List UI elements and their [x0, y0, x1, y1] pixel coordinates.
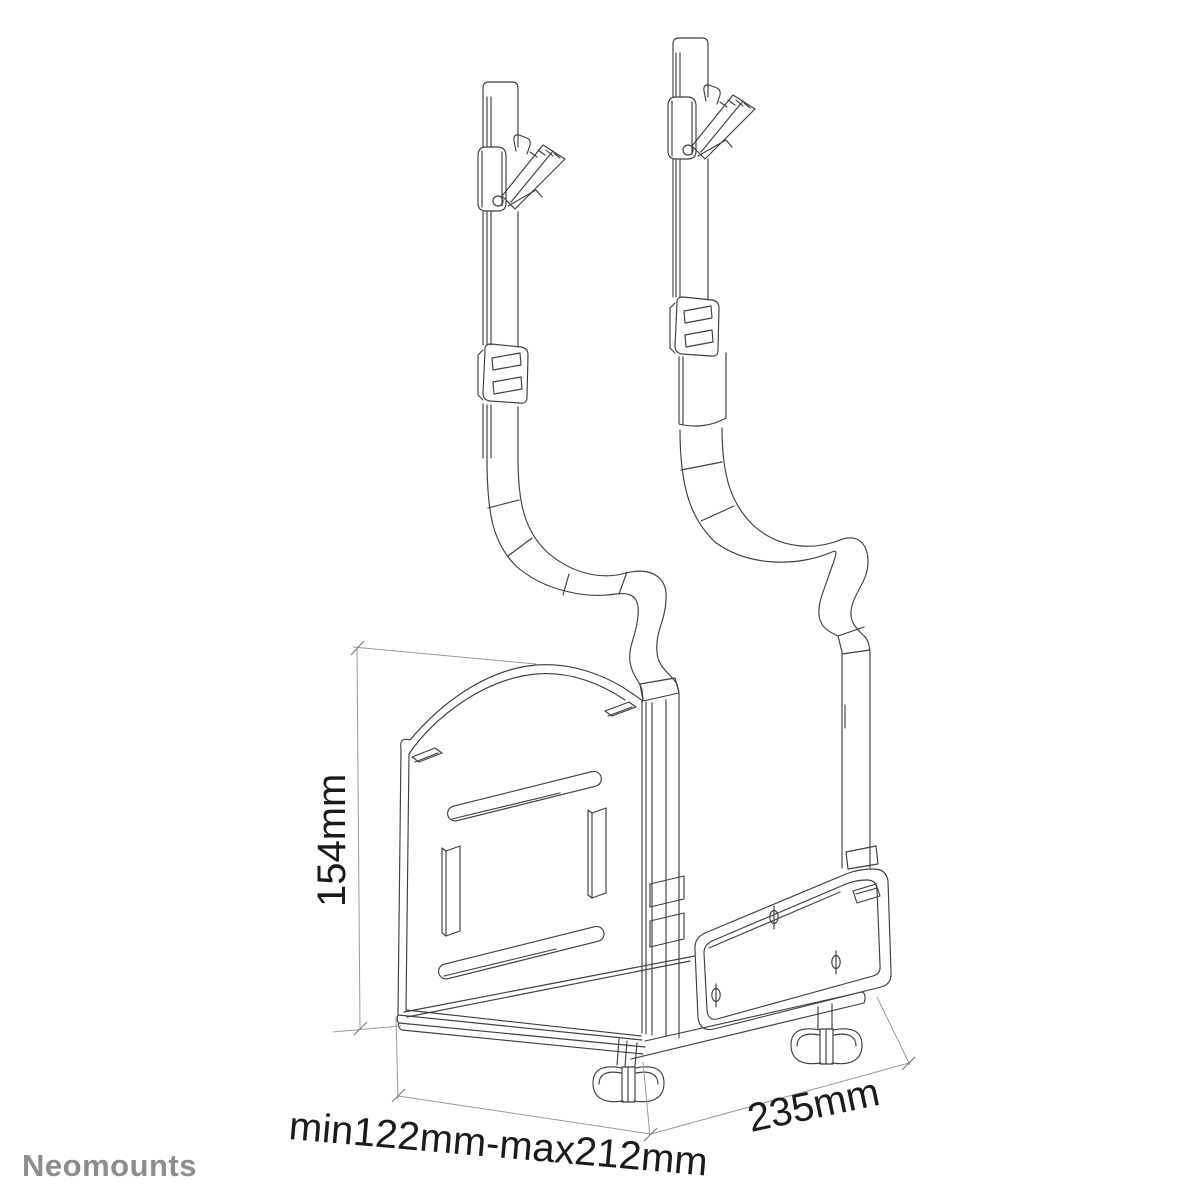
left-strap-upper-rails	[483, 97, 518, 147]
right-strap	[668, 38, 878, 869]
base-rail	[397, 956, 865, 1066]
side-panel-outer	[695, 869, 891, 1030]
right-thumbscrew	[791, 1029, 862, 1064]
right-strap-mid-rails	[673, 159, 708, 300]
right-thumbscrew-post	[820, 1029, 833, 1064]
plate-small-slot-right	[588, 808, 606, 898]
right-hook-back-tab	[704, 85, 720, 104]
technical-drawing-page: 154mm min122mm-max212mm 235mm Neomounts	[0, 0, 1200, 1200]
left-thumbscrew-post	[622, 1067, 635, 1102]
right-strap-wide-band	[679, 353, 726, 426]
dimension-labels: 154mm min122mm-max212mm 235mm	[287, 774, 883, 1185]
depth-extension-left	[396, 1016, 398, 1100]
left-strap-top-cap	[483, 82, 518, 97]
left-strap	[478, 82, 679, 701]
right-strap-upper-rails	[673, 53, 708, 97]
right-strap-buckle-slots	[684, 306, 713, 347]
left-strap-lower-rails	[483, 404, 518, 458]
plate-arch-inner	[409, 674, 625, 754]
side-panel-inner-face	[704, 880, 880, 1019]
right-strap-buckle-side	[670, 303, 675, 353]
left-strap-anchor-wedge	[640, 678, 679, 701]
side-panel-keyholes	[712, 906, 840, 1007]
plate-arch-outer	[401, 665, 643, 748]
height-extension-top	[353, 647, 536, 664]
left-strap-buckle	[483, 344, 528, 403]
base-tray-back-edges	[404, 956, 695, 1017]
plate-bottom-inner-edge	[406, 1010, 641, 1036]
plate-left-edges	[398, 748, 409, 1014]
plate-long-slot-upper-depth	[452, 793, 560, 819]
back-plate	[398, 665, 684, 1038]
right-hook-clamp-inner	[672, 101, 692, 156]
plate-slot-top-left	[412, 748, 442, 762]
plate-slot-top-right	[605, 702, 636, 716]
left-thumbscrew	[593, 1067, 664, 1102]
side-panel	[695, 869, 891, 1030]
right-strap-scurve-outer	[722, 428, 870, 868]
height-dimension-line	[357, 649, 360, 1029]
right-strap-top-cap	[673, 38, 708, 53]
right-thumbscrew-stem	[818, 1004, 832, 1029]
brand-logo: Neomounts	[22, 1148, 197, 1183]
dimension-lines	[333, 641, 915, 1141]
left-hook-back-tab	[514, 135, 530, 154]
right-hook-arm-wedge	[698, 140, 732, 156]
left-hook-arm-wedge	[508, 190, 542, 206]
right-hook-grip-hatches	[720, 100, 750, 108]
cpu-holder-line-drawing: 154mm min122mm-max212mm 235mm Neomounts	[0, 0, 1200, 1200]
depth-range-dimension-label: min122mm-max212mm	[287, 1104, 709, 1184]
plate-long-slot-lower	[437, 925, 606, 981]
plate-long-slot-lower-depth	[444, 949, 556, 976]
left-strap-mid-rails	[483, 212, 518, 347]
right-strap-buckle	[675, 297, 719, 356]
height-extension-bottom	[333, 1026, 401, 1032]
plate-small-slot-left	[442, 846, 460, 936]
strap-channel-verticals	[642, 694, 679, 1038]
base-front-lip	[397, 1015, 645, 1054]
left-strap-buckle-slots	[492, 353, 522, 394]
left-strap-scurve-outer	[518, 458, 679, 693]
left-strap-buckle-side	[478, 350, 483, 400]
side-panel-top-slot	[853, 884, 880, 903]
left-strap-scurve-inner	[487, 458, 643, 700]
width-dimension-label: 235mm	[744, 1070, 884, 1141]
right-strap-scurve-inner	[680, 430, 842, 868]
left-hook-grip-hatches	[530, 150, 560, 158]
width-extension-right	[877, 997, 910, 1065]
left-hook-clamp-inner	[482, 151, 502, 207]
right-strap-end-tab	[846, 846, 878, 869]
height-dimension-label: 154mm	[310, 774, 354, 907]
left-strap-seams	[488, 500, 627, 595]
